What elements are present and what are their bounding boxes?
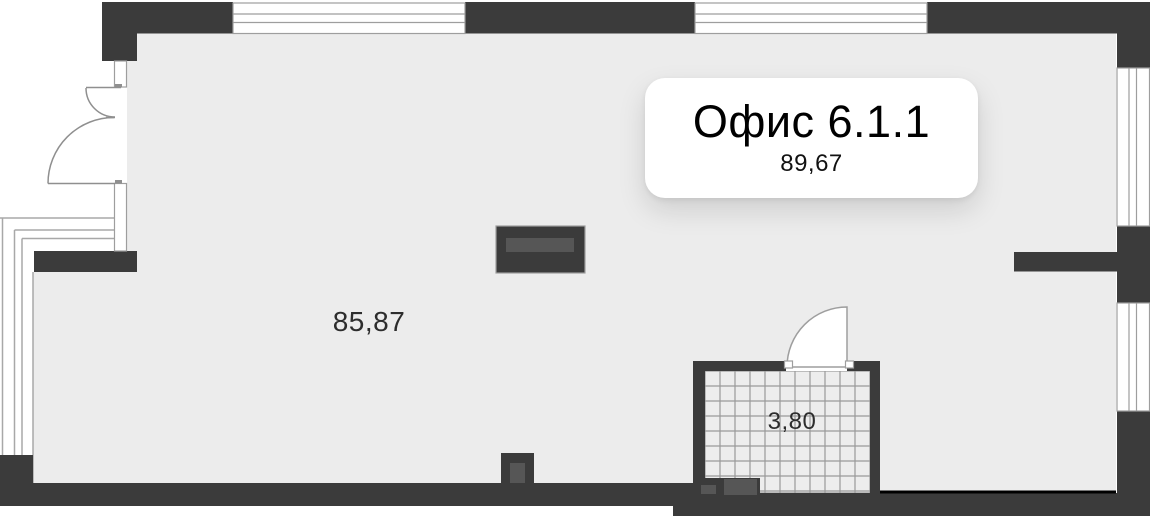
column-stub xyxy=(501,453,534,483)
floor-plan-page: 85,87 3,80 Офис 6.1.1 89,67 xyxy=(0,0,1150,516)
bathroom-wall-top-left xyxy=(693,361,786,371)
wall-stub-left xyxy=(34,251,137,272)
window-right-2 xyxy=(1117,303,1150,411)
entry-door-upper-swing xyxy=(86,88,115,117)
bathroom-wall-left xyxy=(693,361,705,483)
wall-bottom-left xyxy=(33,483,673,506)
bathroom-duct-small xyxy=(701,485,716,494)
wall-corner-top-right xyxy=(1117,2,1150,68)
door-stop-lower xyxy=(115,180,122,184)
wall-right-mid xyxy=(1117,226,1150,303)
office-area-label: 85,87 xyxy=(301,306,437,338)
wall-bottom-mid xyxy=(673,483,693,516)
unit-total-area: 89,67 xyxy=(780,150,843,178)
door-jamb-top xyxy=(115,61,127,87)
wall-corner-top-left xyxy=(102,2,137,61)
bathroom-wall-right xyxy=(870,361,880,493)
unit-title: Офис 6.1.1 xyxy=(693,98,930,145)
bathroom-duct-large xyxy=(724,479,757,495)
wall-corner-bottom-left xyxy=(0,455,33,506)
ventilation-shaft xyxy=(496,226,585,273)
unit-card[interactable]: Офис 6.1.1 89,67 xyxy=(645,78,978,198)
bottom-edge-line xyxy=(880,491,1116,494)
window-top-1 xyxy=(233,3,465,34)
wall-bottom-right xyxy=(693,493,1150,516)
wall-top-right xyxy=(927,2,1150,34)
wall-stub-right xyxy=(1014,252,1117,272)
bathroom-area-label: 3,80 xyxy=(742,408,842,436)
floor-plan-drawing xyxy=(0,0,1150,516)
wall-top-middle xyxy=(465,2,695,34)
window-right-1 xyxy=(1117,68,1150,226)
bathroom-door-stop-left xyxy=(785,361,793,368)
entry-door-lower-swing xyxy=(48,118,114,184)
door-jamb-bottom xyxy=(115,184,127,252)
bathroom-door-stop-right xyxy=(846,361,854,368)
window-top-2 xyxy=(695,3,927,34)
